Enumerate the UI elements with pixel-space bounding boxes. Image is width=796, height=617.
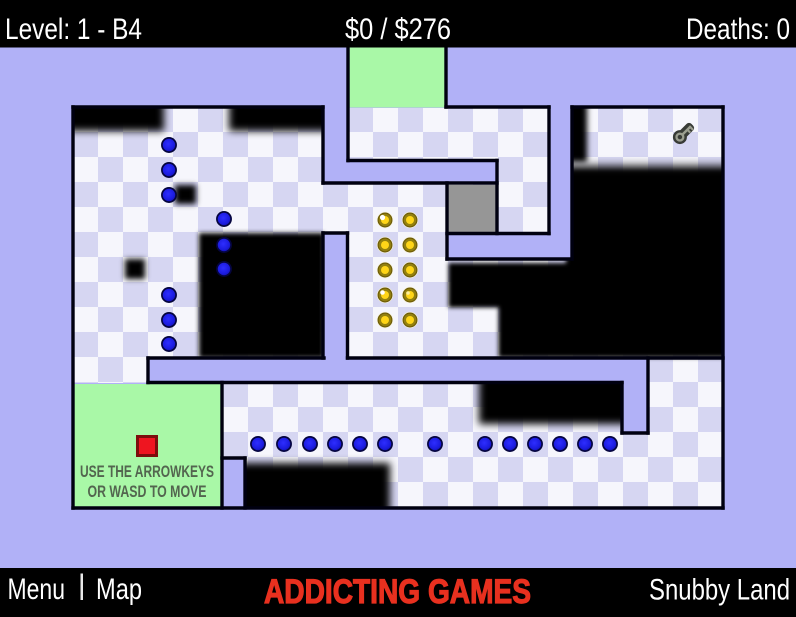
svg-text:ADDICTING GAMES: ADDICTING GAMES [264, 573, 531, 611]
svg-text:USE THE ARROWKEYS: USE THE ARROWKEYS [80, 462, 214, 481]
svg-text:Menu: Menu [8, 573, 66, 606]
svg-text:Deaths: 0: Deaths: 0 [686, 13, 790, 46]
svg-text:$0 / $276: $0 / $276 [345, 13, 451, 46]
svg-text:OR WASD TO MOVE: OR WASD TO MOVE [88, 482, 207, 501]
svg-text:Level: 1 - B4: Level: 1 - B4 [5, 13, 142, 46]
svg-text:Map: Map [96, 573, 142, 606]
svg-text:Snubby Land: Snubby Land [649, 574, 790, 607]
